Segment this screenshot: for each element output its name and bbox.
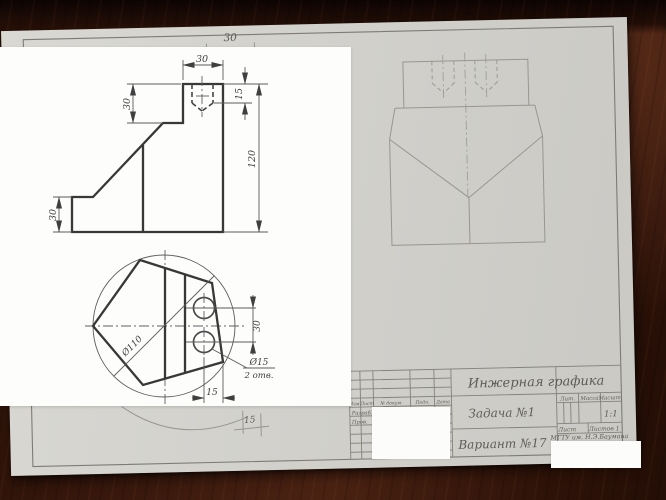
dim-outer-diameter: Ø110 — [119, 333, 145, 359]
row-checked-label: Пров. — [351, 419, 368, 425]
inset-image: 30 15 120 30 30 — [0, 47, 351, 406]
row-developed-label: Разраб. — [351, 409, 373, 416]
lit-header: Лит. — [559, 396, 575, 402]
sheet-bottom-dim-text: 15 — [244, 415, 257, 426]
top-view: Ø110 30 Ø15 2 отв. 15 — [85, 250, 275, 406]
mass-header: Масса — [579, 396, 598, 402]
dim-hole-diameter: Ø15 — [249, 357, 269, 368]
col-sign-label: Подп. — [414, 400, 430, 406]
side-view-drawing — [388, 51, 545, 245]
dim-hole-edge-offset: 15 — [206, 388, 218, 398]
sheet-top-dim-text: 30 — [223, 32, 237, 44]
scale-value: 1:1 — [604, 409, 618, 419]
dim-hole-count: 2 отв. — [244, 371, 274, 381]
col-doc-label: № докум. — [379, 400, 403, 407]
scale-header: Масшт. — [597, 395, 623, 402]
front-view: 30 15 120 30 30 — [48, 54, 268, 232]
sheet-bottom-remnant: 15 — [122, 403, 270, 439]
dim-hole-depth: 15 — [234, 88, 245, 100]
dim-notch-depth: 30 — [122, 98, 133, 110]
variant-label: Вариант №17 — [457, 436, 547, 452]
sheet-label: Лист — [557, 426, 576, 433]
redaction-box-left — [372, 407, 450, 459]
sheets-count-label: Листов 1 — [588, 425, 620, 433]
task-label: Задача №1 — [468, 405, 535, 421]
dim-total-height: 120 — [247, 150, 258, 168]
dim-base-height: 30 — [48, 209, 59, 221]
dim-top-width: 30 — [196, 54, 208, 65]
dim-hole-spacing: 30 — [253, 320, 263, 332]
inset-drawing: 30 15 120 30 30 — [0, 47, 351, 406]
col-date-label: Дата — [435, 399, 450, 405]
photo-scene: 30 15 — [0, 0, 666, 500]
discipline-title: Инжерная графика — [467, 374, 605, 392]
redaction-box-right — [551, 441, 641, 468]
